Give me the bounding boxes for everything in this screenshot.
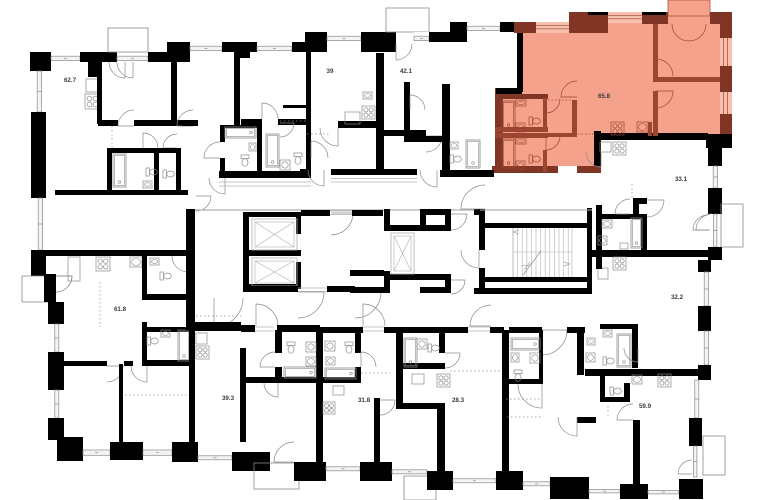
svg-text:32.2: 32.2 <box>671 294 684 301</box>
svg-text:33.1: 33.1 <box>675 176 688 183</box>
svg-text:39: 39 <box>327 68 334 75</box>
svg-text:31.8: 31.8 <box>358 397 371 404</box>
svg-text:65.8: 65.8 <box>598 93 611 100</box>
svg-text:28.3: 28.3 <box>452 397 465 404</box>
svg-text:62.7: 62.7 <box>64 77 77 84</box>
svg-text:39.3: 39.3 <box>222 395 235 402</box>
svg-text:59.9: 59.9 <box>639 403 652 410</box>
svg-text:61.8: 61.8 <box>114 306 127 313</box>
svg-text:42.1: 42.1 <box>400 68 413 75</box>
